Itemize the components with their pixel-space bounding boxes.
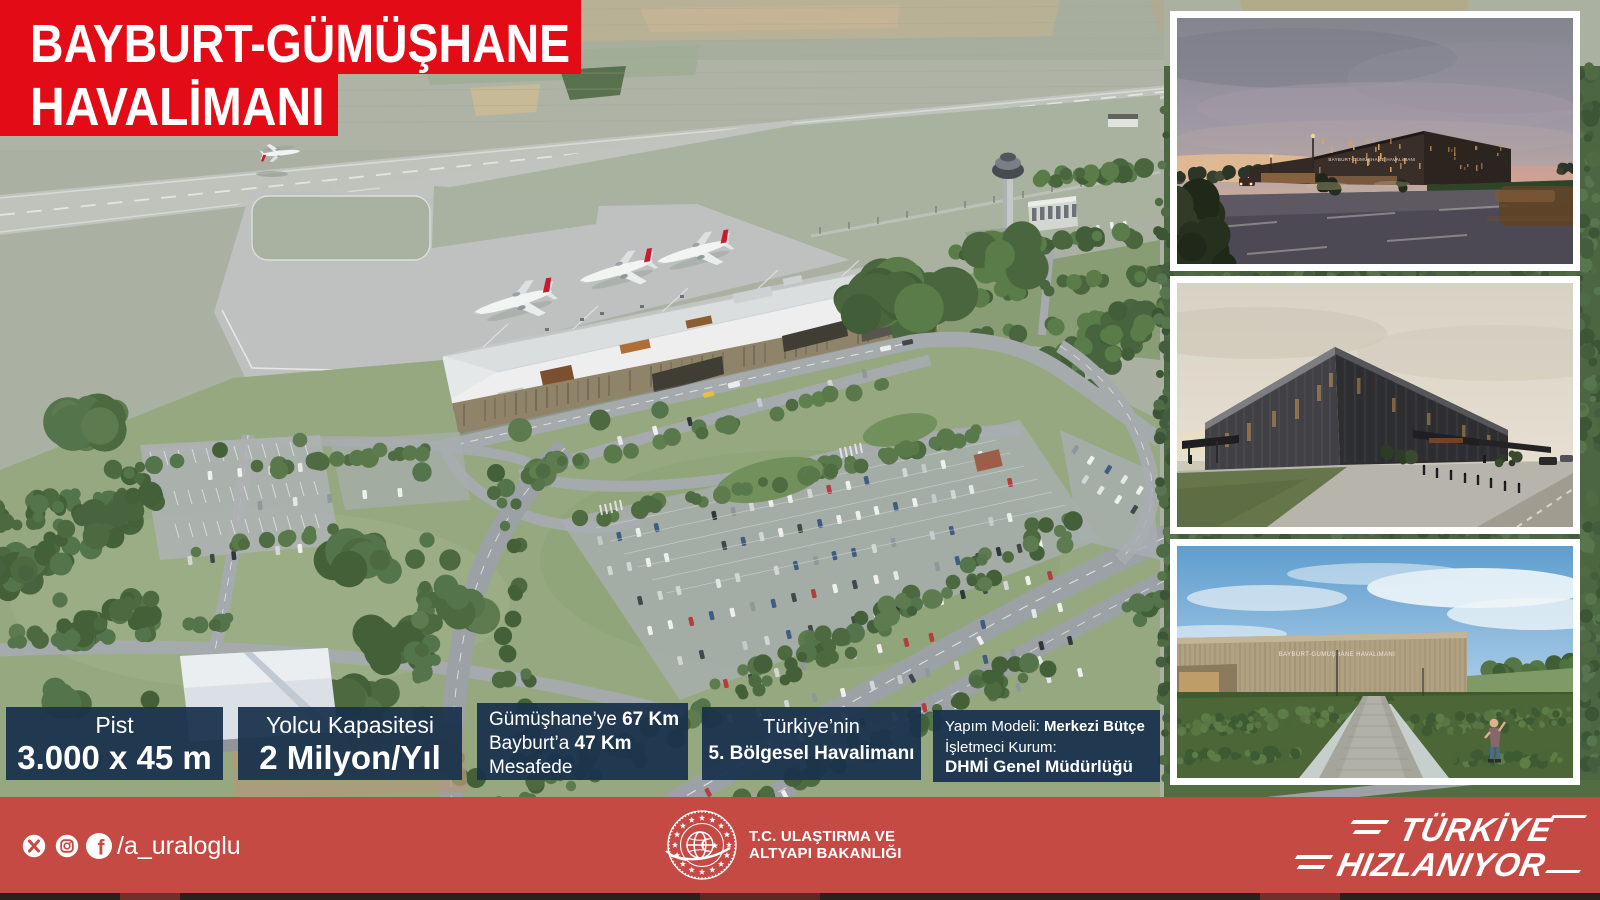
svg-text:f: f — [98, 837, 106, 860]
svg-text:BAYBURT-GÜMÜŞHANE HAVALiMANI: BAYBURT-GÜMÜŞHANE HAVALiMANI — [1328, 156, 1415, 162]
